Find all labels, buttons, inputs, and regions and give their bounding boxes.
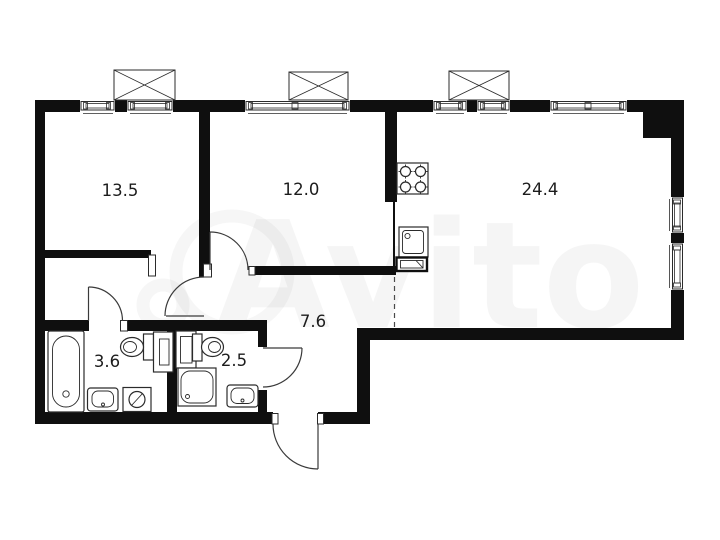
window-icon [128,102,172,114]
radiator-icon [397,258,428,272]
window-icon [670,198,683,232]
stove-icon [397,163,428,194]
window-icon [434,102,466,114]
cabinet-icon [154,332,174,372]
floor-plan: Avito [0,0,720,540]
shower-cabin-icon [178,368,216,406]
window-icon [246,102,349,114]
balcony-boxes [114,70,509,100]
room-label-3-6: 3.6 [94,352,120,371]
balcony-box-icon [289,72,348,100]
watermark-ring-small-icon [143,285,183,325]
window-icon [81,102,114,114]
door-arc-bathroom [89,287,123,321]
room-label-2-5: 2.5 [221,351,247,370]
window-icon [670,244,683,289]
bathtub-icon [48,331,84,412]
room-label-12-0: 12.0 [283,180,320,199]
room-label-13-5: 13.5 [102,181,139,200]
entrance-door-arc [273,424,318,469]
window-icon [551,102,626,114]
floor-plan-canvas: Avito [0,0,720,540]
toilet-icon [121,334,154,360]
washbasin-icon [88,388,119,411]
room-label-7-6: 7.6 [300,312,326,331]
balcony-box-icon [114,70,175,100]
windows-right [670,198,683,289]
balcony-box-icon [449,71,509,100]
washbasin-icon [227,385,258,407]
kitchen-sink-icon [399,227,428,257]
room-label-24-4: 24.4 [522,180,559,199]
window-icon [478,102,509,114]
washing-machine-icon [123,388,151,412]
